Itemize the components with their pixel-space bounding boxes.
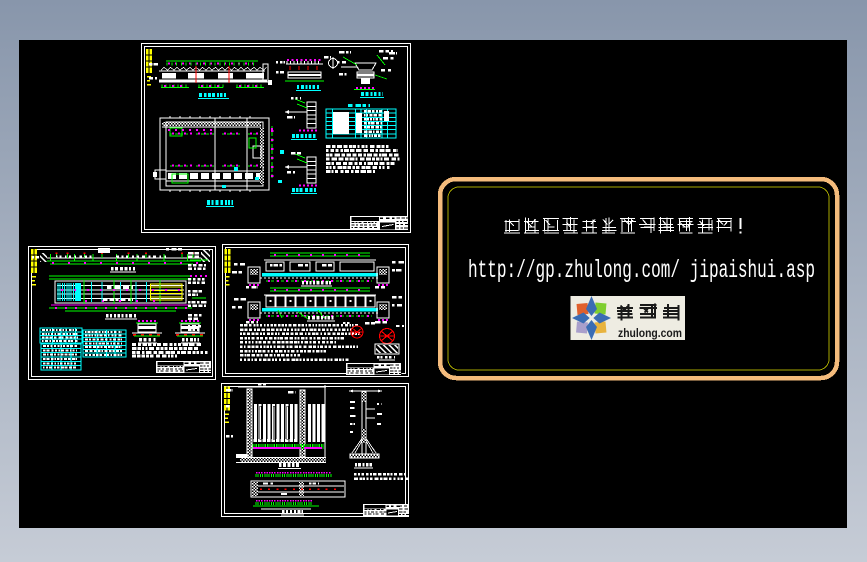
svg-text:http://gp.zhulong.com/ jipaish: http://gp.zhulong.com/ jipaishui.asp (468, 256, 815, 285)
svg-text:zhulong.com: zhulong.com (618, 326, 682, 340)
